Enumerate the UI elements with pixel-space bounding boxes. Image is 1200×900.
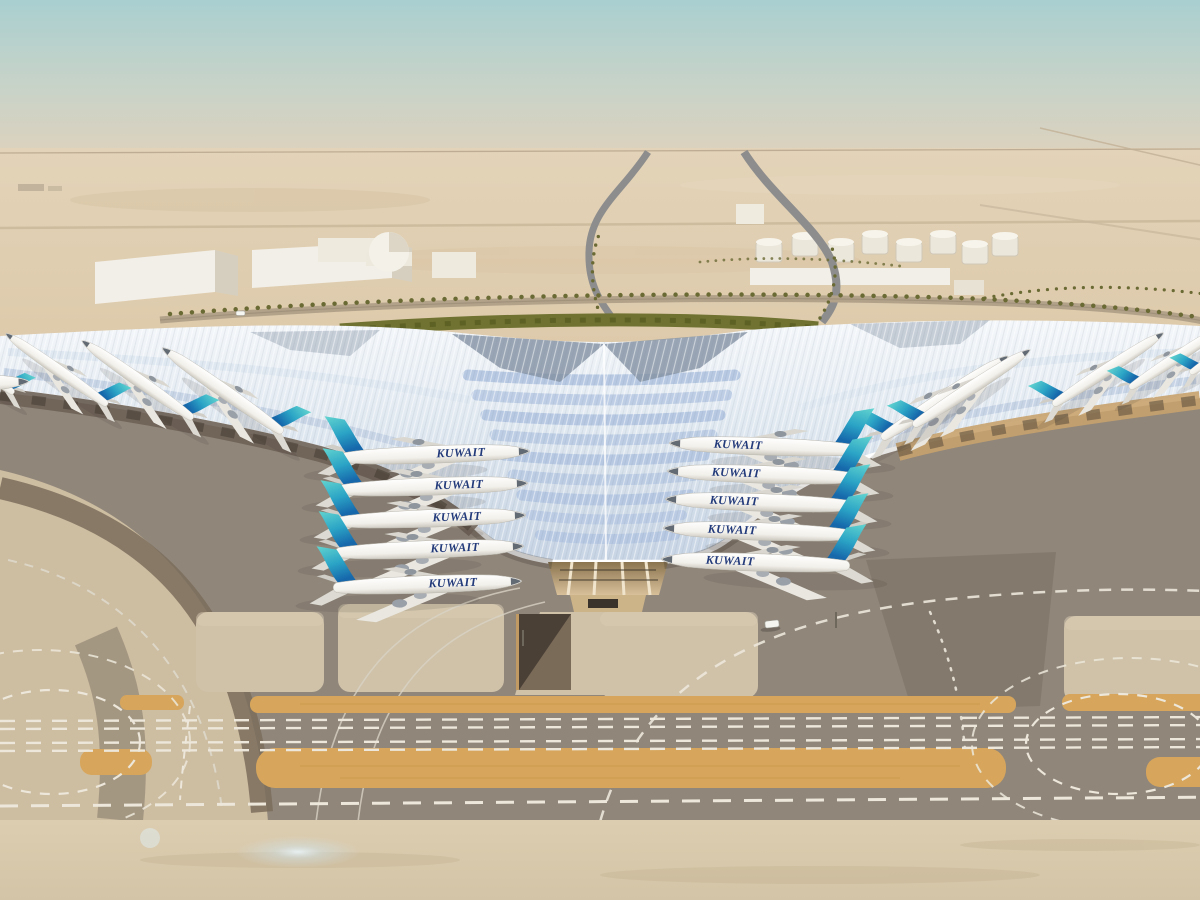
- aircraft-title: KUWAIT: [433, 477, 484, 493]
- aircraft-title: KUWAIT: [429, 540, 480, 556]
- sunken-service-ramp: [516, 614, 571, 690]
- road-vehicle: [236, 311, 245, 316]
- aircraft-title: KUWAIT: [712, 437, 763, 453]
- aircraft-title: KUWAIT: [708, 493, 759, 509]
- sky: [0, 0, 1200, 158]
- aircraft-title: KUWAIT: [710, 465, 761, 481]
- aircraft-title: KUWAIT: [704, 553, 755, 569]
- aircraft-title: KUWAIT: [427, 575, 478, 591]
- aircraft-title: KUWAIT: [431, 509, 482, 525]
- airport-rendering: KUWAIT KUWAIT KUWAIT KUWAIT KUWAIT KUWAI…: [0, 0, 1200, 900]
- entrance-door: [588, 599, 618, 608]
- aircraft-title: KUWAIT: [435, 445, 486, 461]
- lens-flare: [236, 836, 360, 868]
- aircraft-title: KUWAIT: [706, 522, 757, 538]
- lens-flare-dot: [140, 828, 160, 848]
